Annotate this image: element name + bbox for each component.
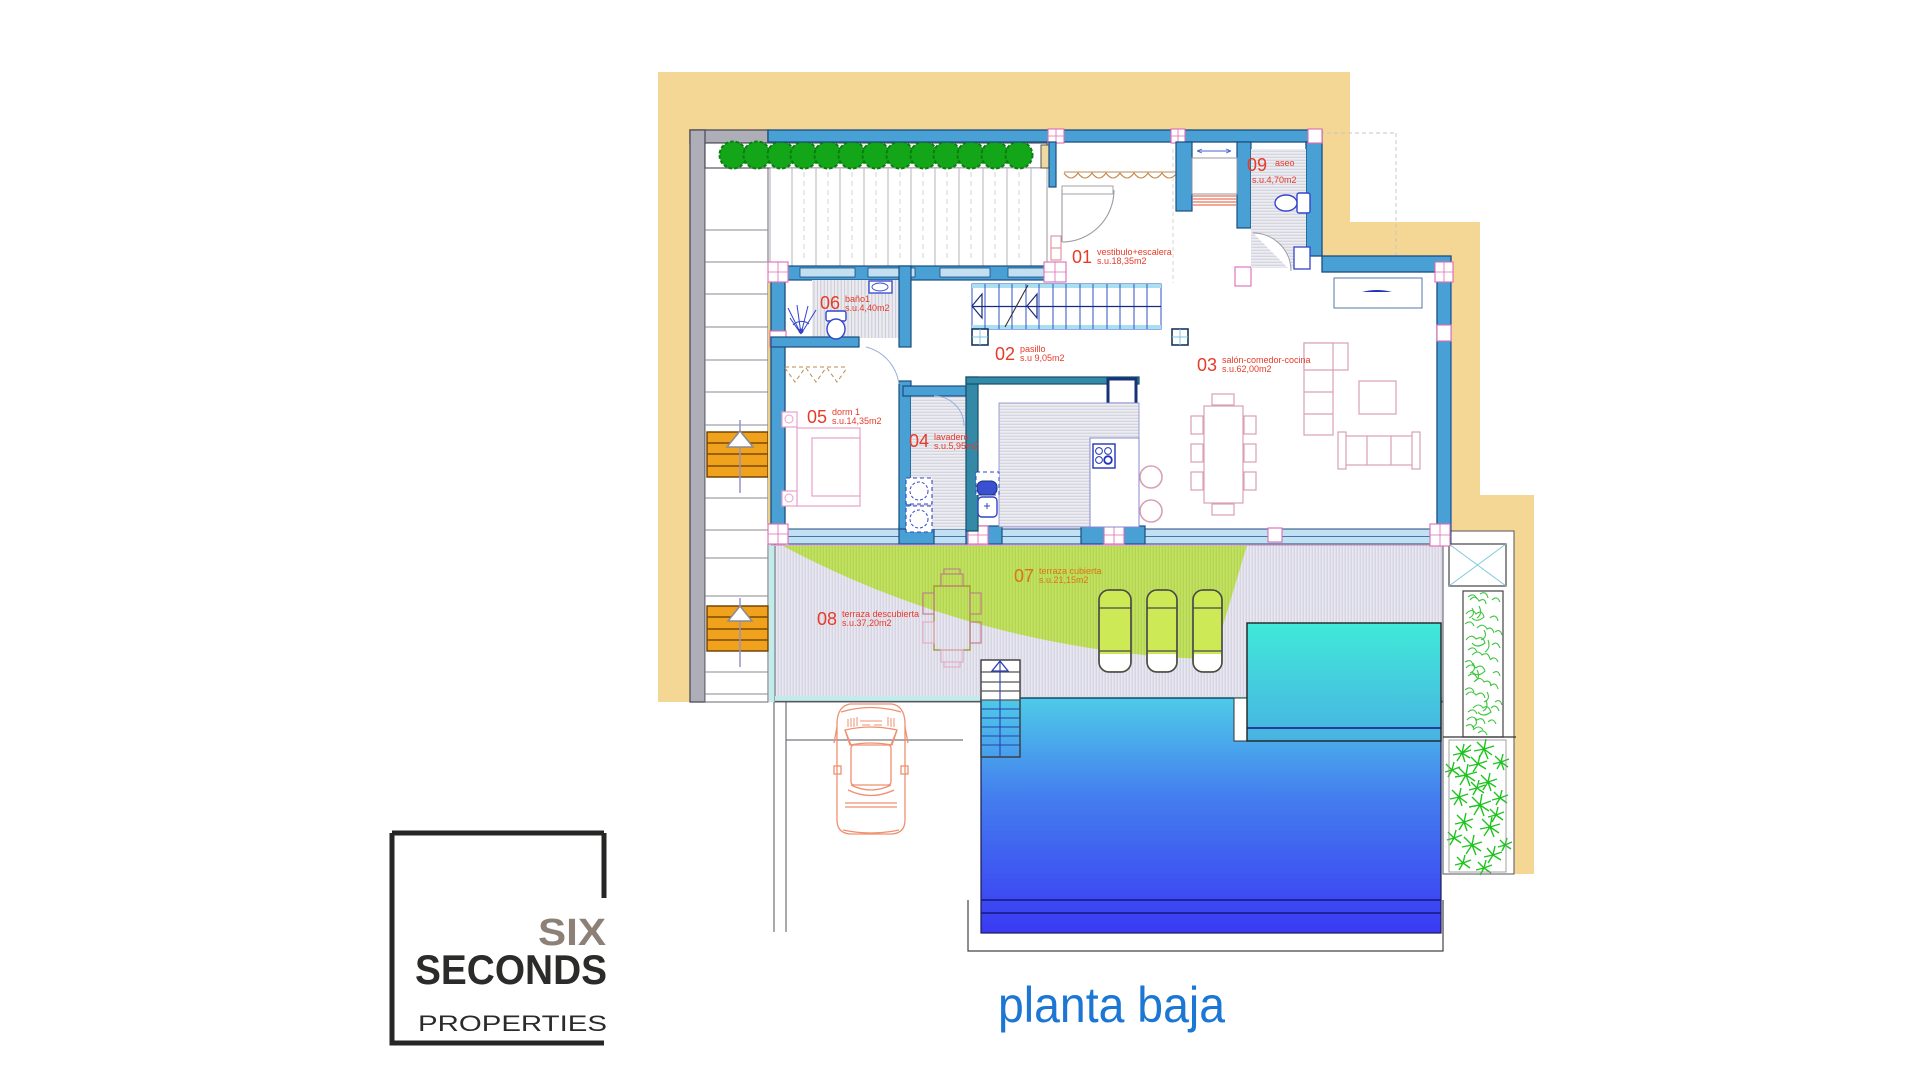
svg-text:PROPERTIES: PROPERTIES <box>418 1011 607 1036</box>
svg-text:04: 04 <box>909 431 929 451</box>
svg-text:SECONDS: SECONDS <box>415 946 607 993</box>
svg-text:s.u.21,15m2: s.u.21,15m2 <box>1039 575 1089 585</box>
svg-text:planta baja: planta baja <box>998 977 1225 1033</box>
svg-text:s.u.4,40m2: s.u.4,40m2 <box>845 303 890 313</box>
svg-text:06: 06 <box>820 293 840 313</box>
svg-text:s.u.37,20m2: s.u.37,20m2 <box>842 618 892 628</box>
svg-text:09: 09 <box>1247 155 1267 175</box>
svg-text:s.u.5,95m2: s.u.5,95m2 <box>934 441 979 451</box>
svg-text:s.u.18,35m2: s.u.18,35m2 <box>1097 256 1147 266</box>
svg-text:s.u.14,35m2: s.u.14,35m2 <box>832 416 882 426</box>
svg-text:08: 08 <box>817 609 837 629</box>
svg-text:aseo: aseo <box>1275 158 1295 168</box>
svg-text:01: 01 <box>1072 247 1092 267</box>
svg-text:s.u.62,00m2: s.u.62,00m2 <box>1222 364 1272 374</box>
svg-text:s.u.4,70m2: s.u.4,70m2 <box>1252 175 1297 185</box>
svg-text:05: 05 <box>807 407 827 427</box>
svg-text:07: 07 <box>1014 566 1034 586</box>
svg-text:03: 03 <box>1197 355 1217 375</box>
svg-text:s.u 9,05m2: s.u 9,05m2 <box>1020 353 1065 363</box>
svg-text:02: 02 <box>995 344 1015 364</box>
